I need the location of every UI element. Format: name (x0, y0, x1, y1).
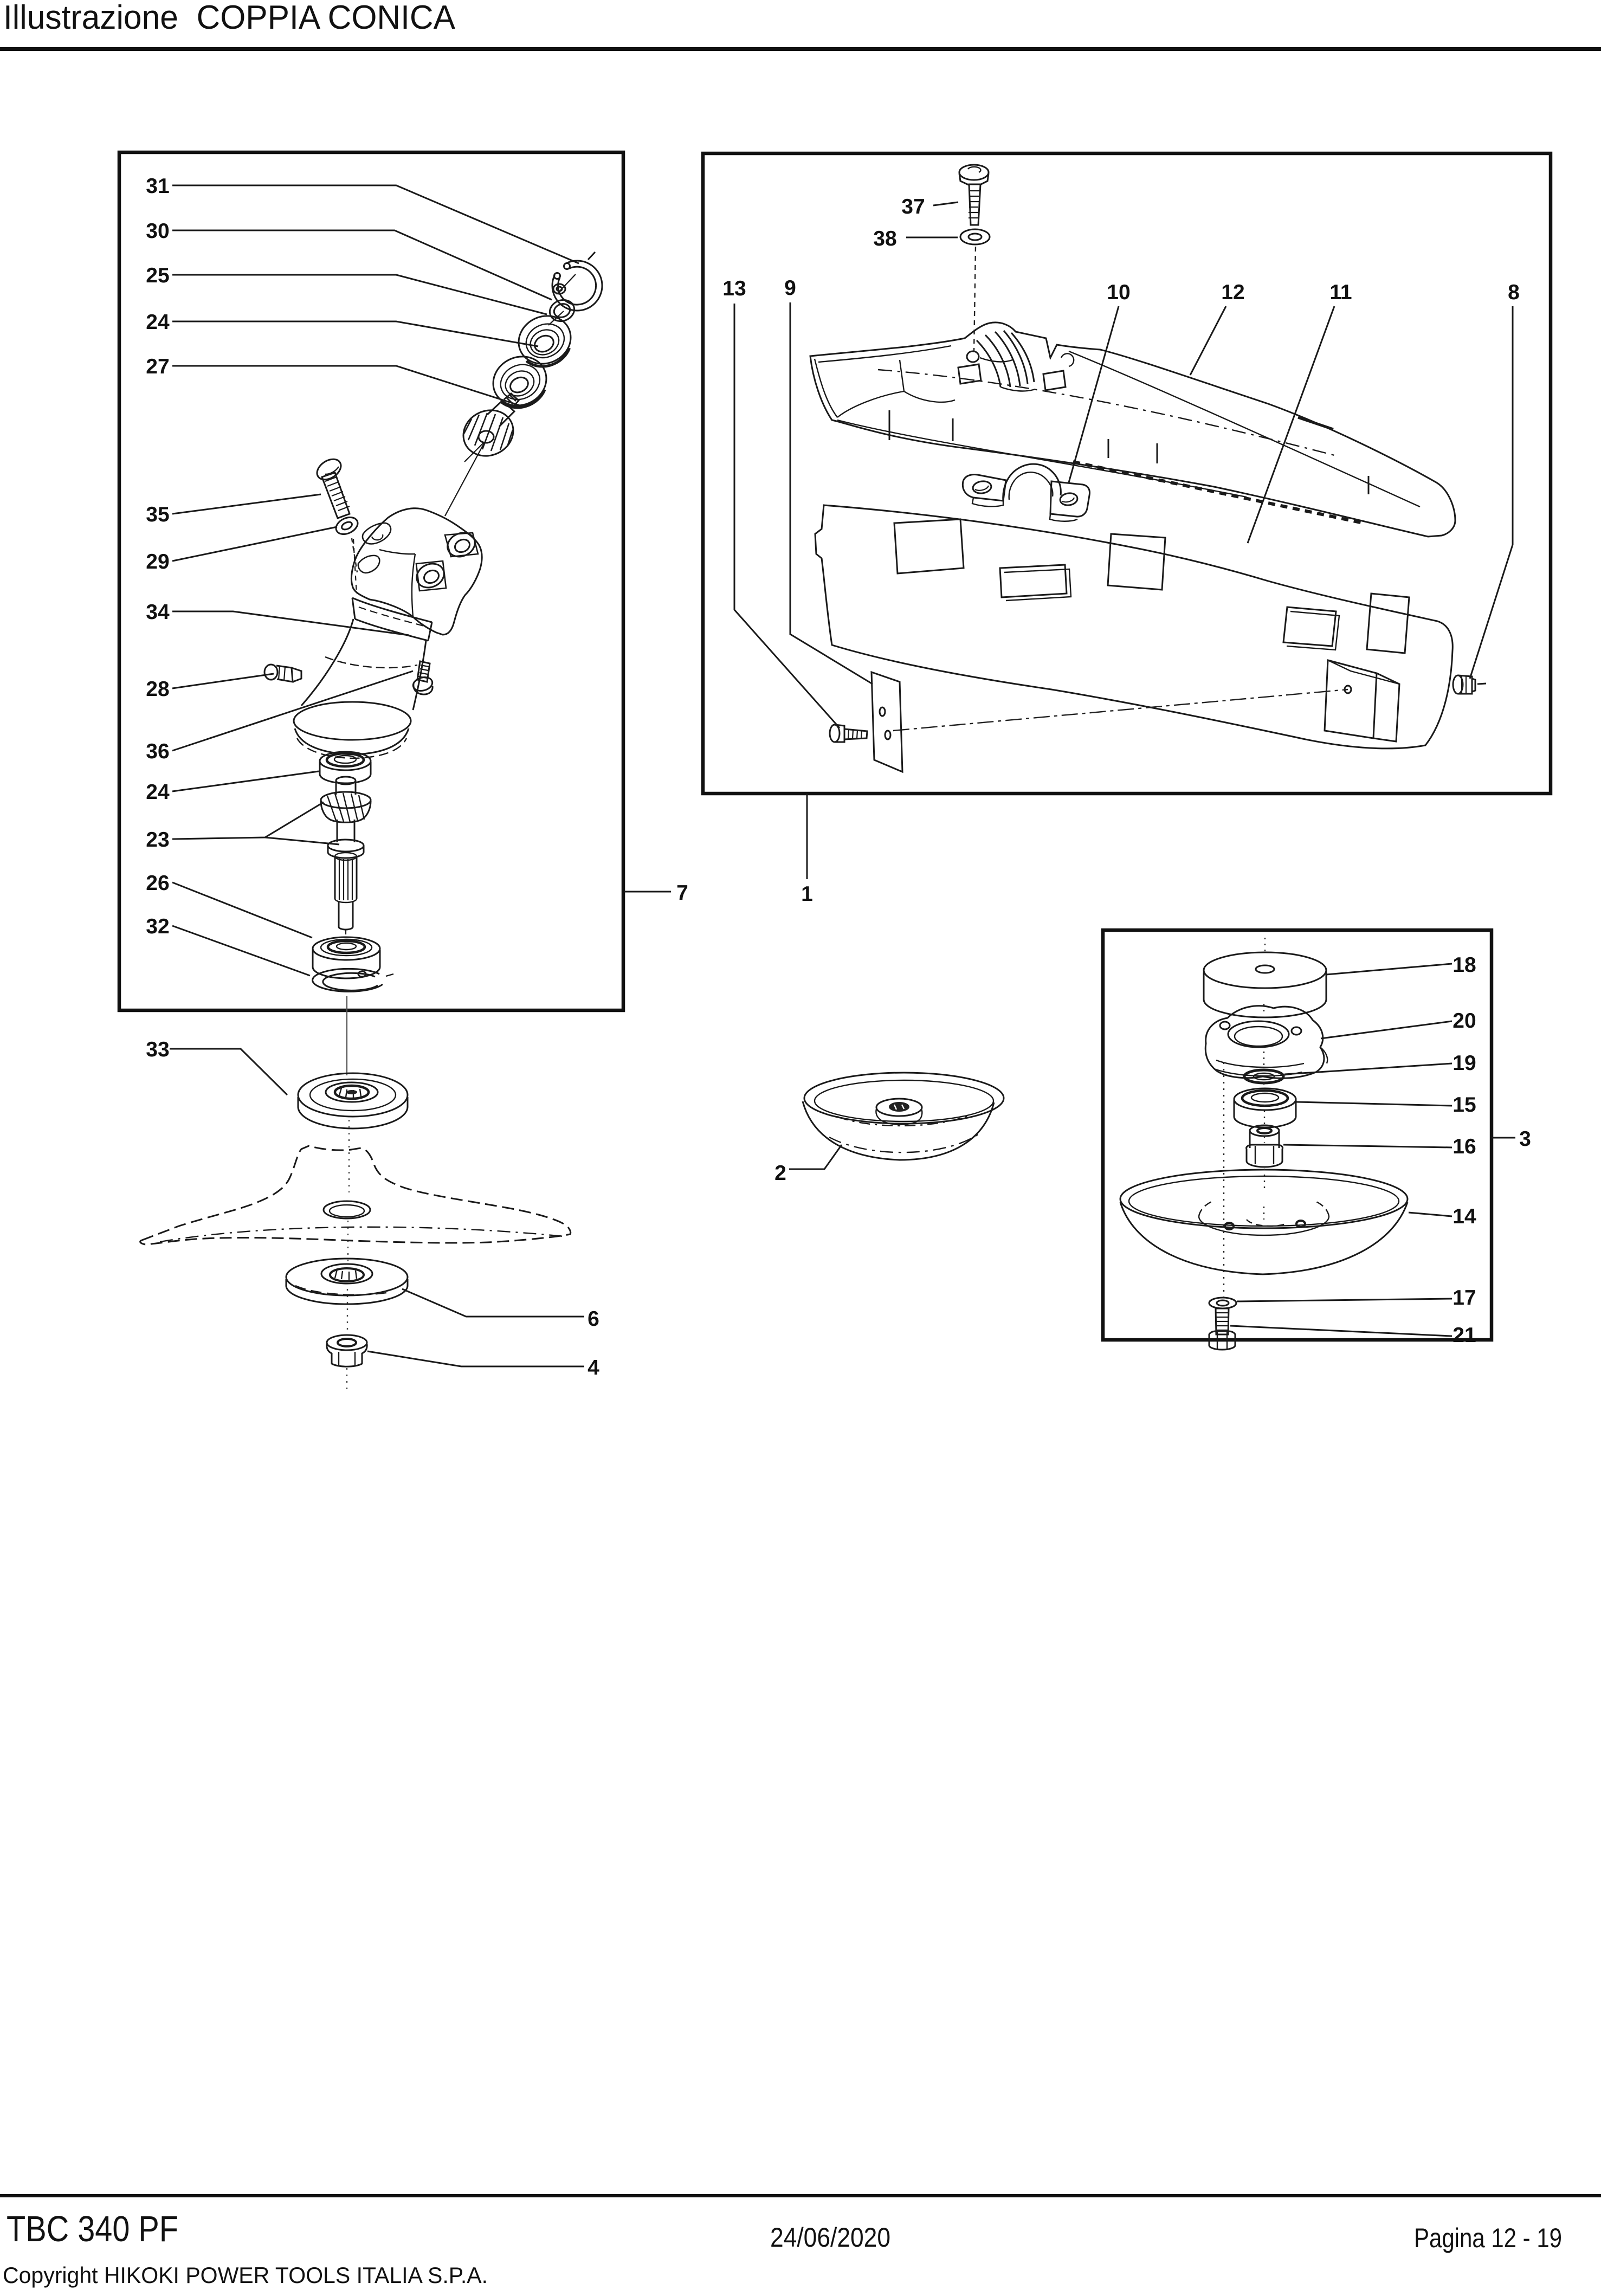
svg-text:36: 36 (146, 740, 169, 763)
svg-text:13: 13 (722, 277, 746, 300)
svg-text:12: 12 (1221, 281, 1244, 304)
svg-text:4: 4 (588, 1356, 599, 1379)
svg-text:19: 19 (1452, 1052, 1476, 1075)
svg-text:30: 30 (146, 220, 169, 243)
svg-text:15: 15 (1452, 1093, 1476, 1117)
svg-text:20: 20 (1452, 1009, 1476, 1033)
svg-text:31: 31 (146, 175, 169, 198)
svg-text:21: 21 (1452, 1324, 1476, 1347)
svg-text:38: 38 (873, 227, 896, 250)
svg-text:35: 35 (146, 503, 169, 526)
svg-text:3: 3 (1519, 1127, 1531, 1151)
svg-text:TBC 340 PF: TBC 340 PF (7, 2209, 178, 2249)
svg-text:24: 24 (146, 311, 170, 334)
svg-text:Copyright HIKOKI POWER TOOLS I: Copyright HIKOKI POWER TOOLS ITALIA S.P.… (3, 2262, 488, 2288)
svg-text:6: 6 (588, 1307, 599, 1331)
svg-text:24: 24 (146, 781, 170, 804)
svg-text:1: 1 (801, 882, 813, 906)
svg-text:24/06/2020: 24/06/2020 (770, 2222, 890, 2253)
svg-text:8: 8 (1508, 281, 1520, 304)
svg-text:34: 34 (146, 601, 170, 624)
svg-text:29: 29 (146, 550, 169, 573)
svg-text:16: 16 (1452, 1135, 1476, 1158)
svg-text:33: 33 (146, 1038, 169, 1061)
svg-text:11: 11 (1329, 281, 1352, 304)
svg-text:23: 23 (146, 828, 169, 852)
svg-text:32: 32 (146, 915, 169, 938)
svg-text:37: 37 (901, 195, 925, 218)
svg-text:7: 7 (676, 881, 688, 905)
svg-text:10: 10 (1107, 281, 1130, 304)
svg-text:25: 25 (146, 264, 169, 287)
svg-text:Illustrazione COPPIA CONICA: Illustrazione COPPIA CONICA (3, 0, 456, 36)
svg-text:9: 9 (784, 276, 796, 300)
svg-text:Pagina 12 - 19: Pagina 12 - 19 (1414, 2223, 1562, 2253)
svg-text:14: 14 (1452, 1205, 1476, 1228)
svg-text:27: 27 (146, 355, 169, 378)
svg-text:18: 18 (1452, 953, 1476, 977)
svg-text:26: 26 (146, 872, 169, 895)
svg-text:28: 28 (146, 678, 169, 701)
svg-text:17: 17 (1452, 1286, 1476, 1310)
svg-text:2: 2 (774, 1162, 786, 1185)
